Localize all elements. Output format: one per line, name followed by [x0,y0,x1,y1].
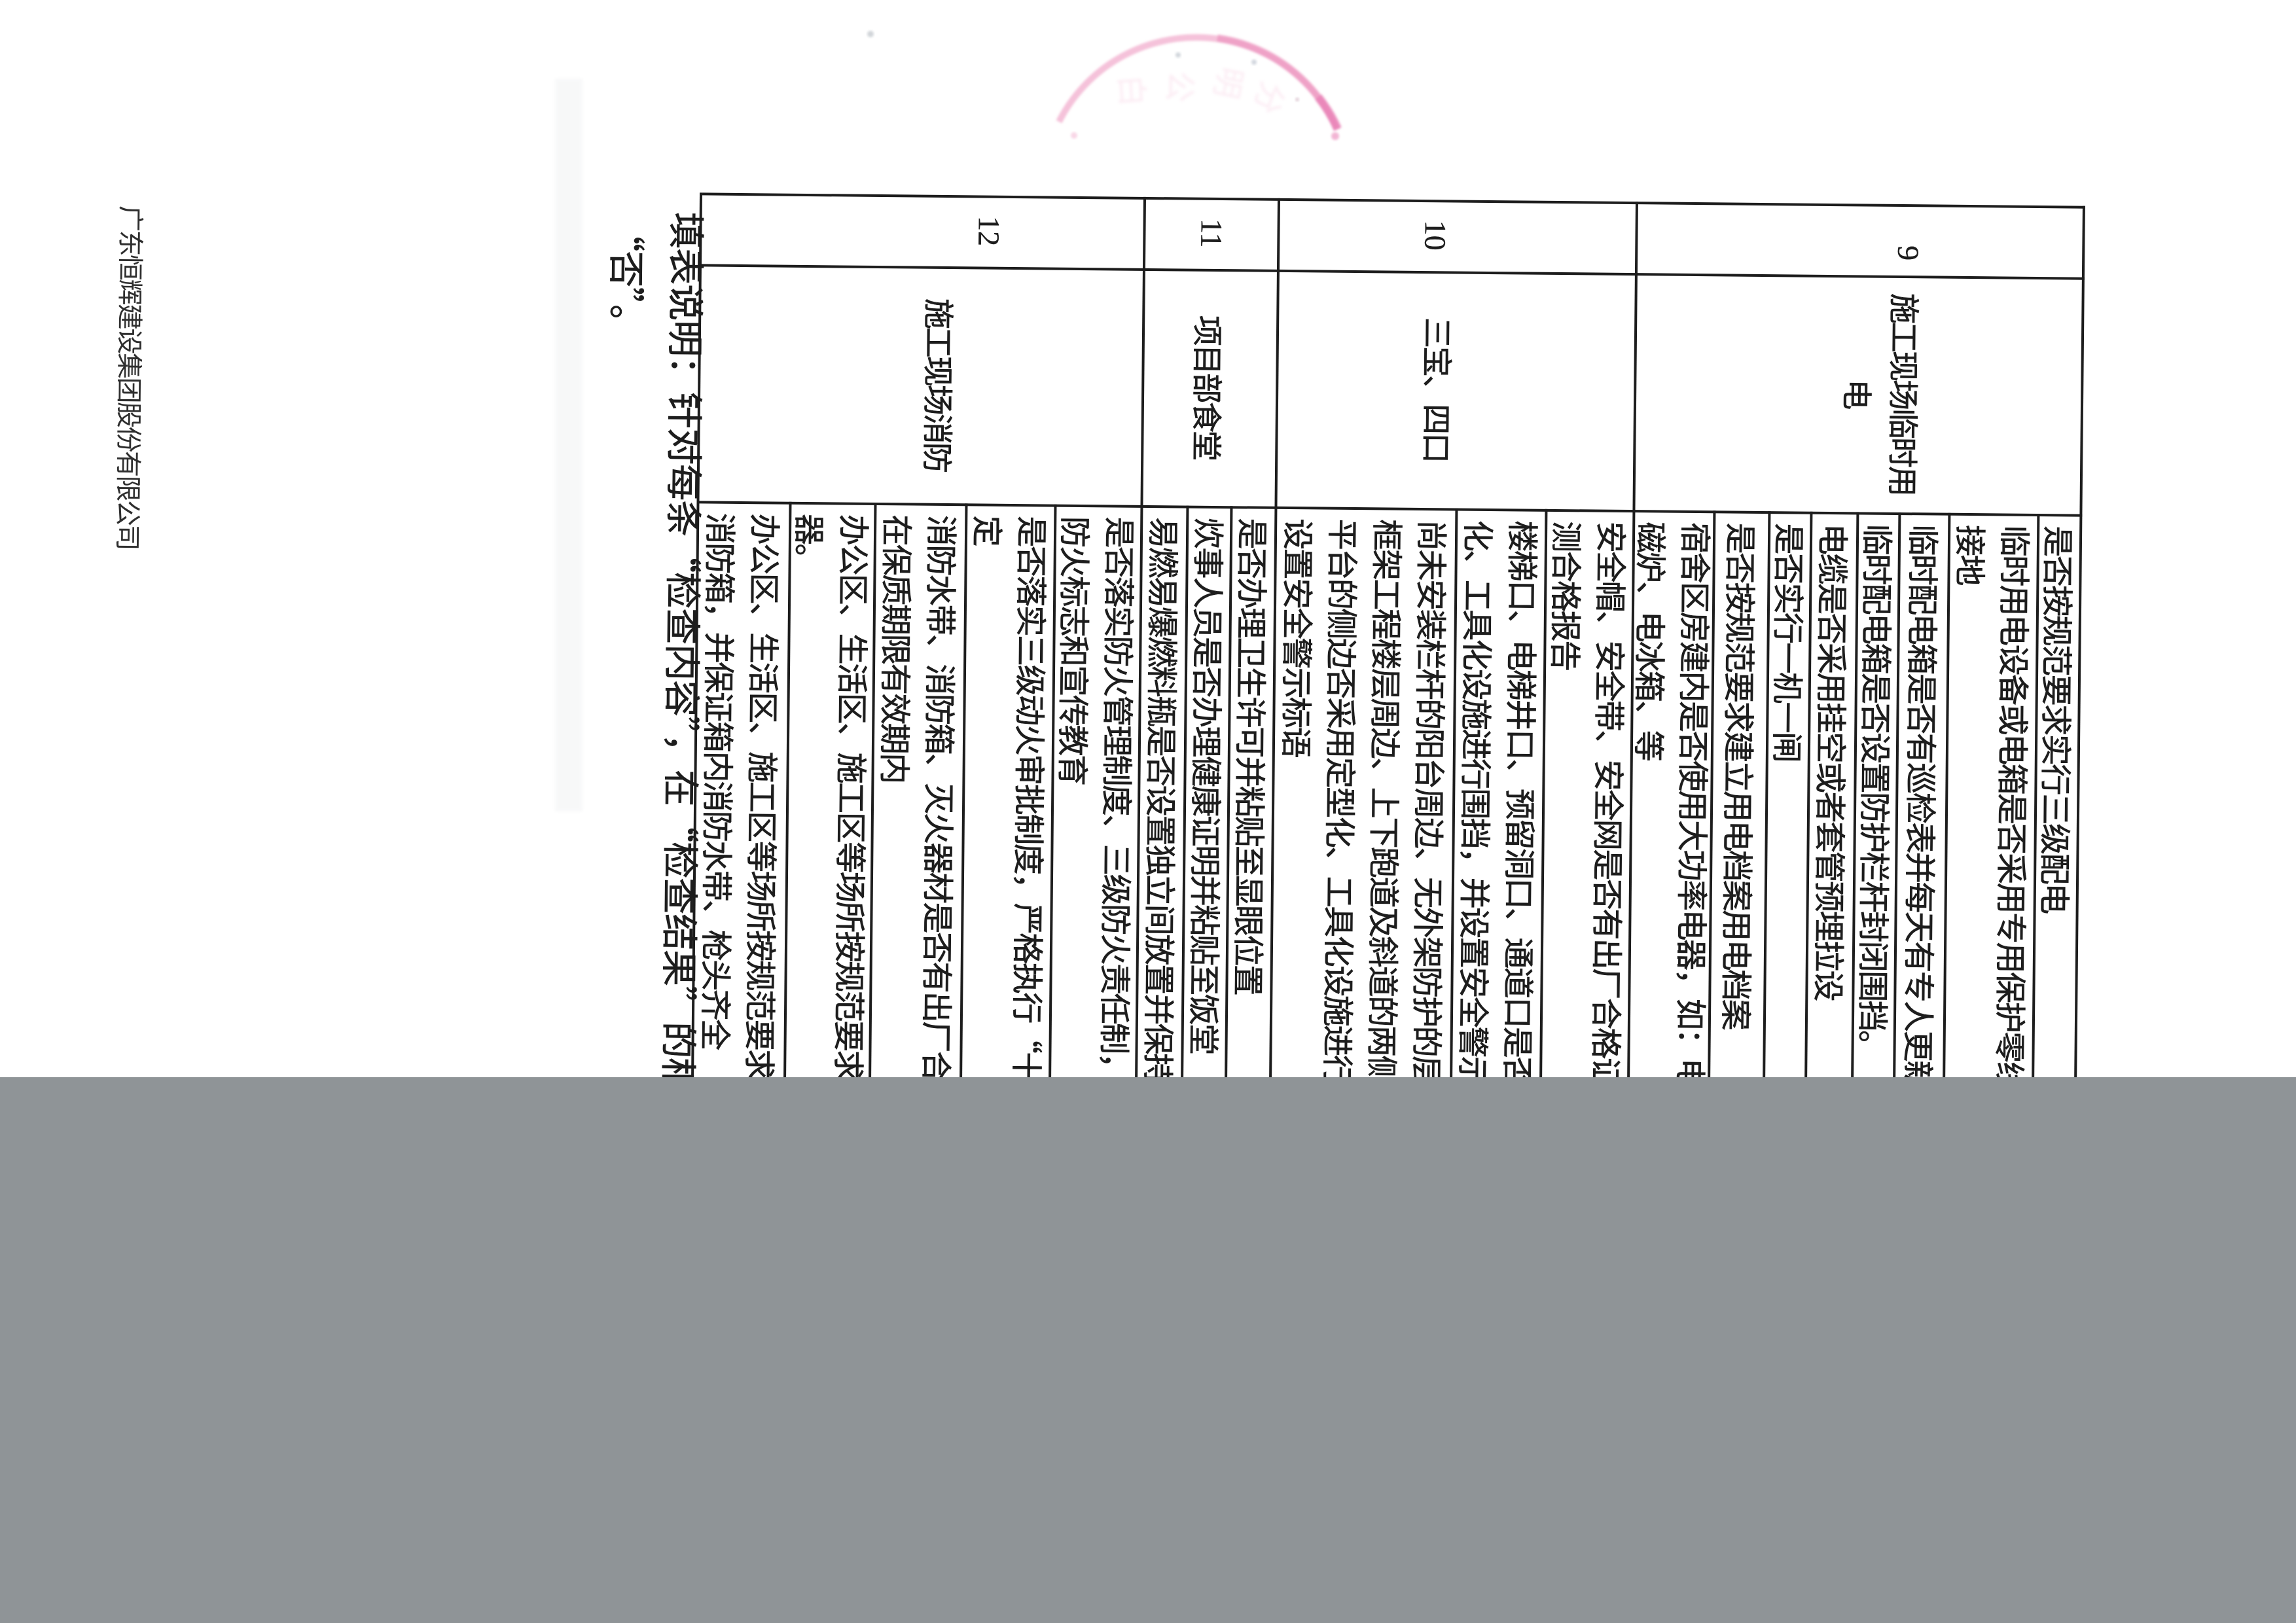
svg-text:公: 公 [1158,69,1206,104]
svg-text:白: 白 [1110,73,1158,108]
